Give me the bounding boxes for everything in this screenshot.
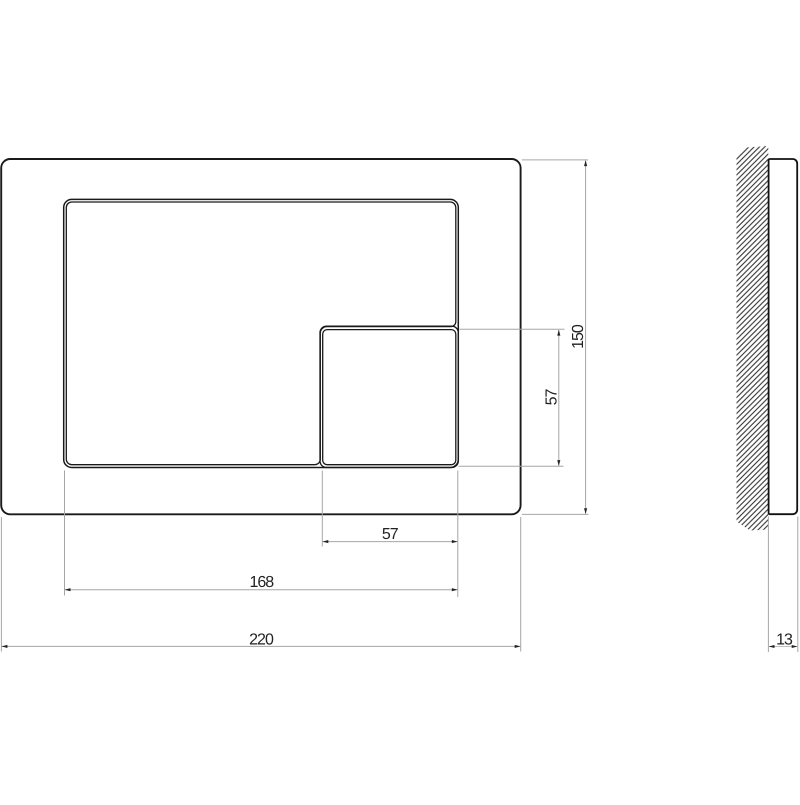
svg-text:57: 57 (543, 389, 560, 406)
svg-text:57: 57 (382, 526, 399, 543)
svg-text:220: 220 (249, 631, 274, 648)
svg-text:13: 13 (776, 632, 793, 649)
svg-text:168: 168 (249, 574, 274, 591)
svg-text:150: 150 (570, 324, 587, 349)
